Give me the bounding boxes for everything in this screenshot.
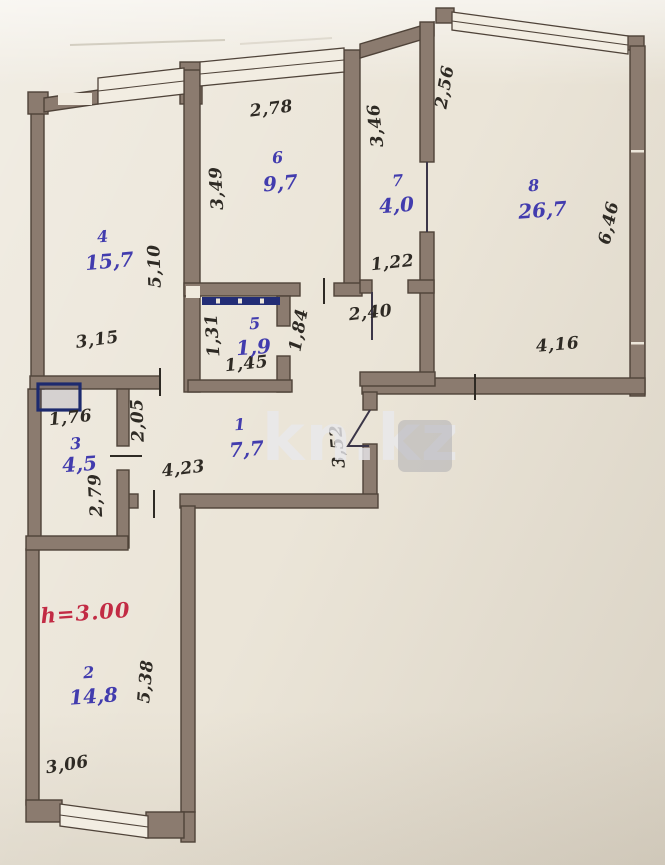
dim-5-38: 5,38 xyxy=(134,659,158,704)
dim-2-78: 2,78 xyxy=(248,96,295,121)
window-room-4 xyxy=(98,68,184,104)
room-6-area: 9,7 xyxy=(262,170,299,197)
dim-2-56: 2,56 xyxy=(431,64,458,111)
watermark-logo-box xyxy=(398,420,452,472)
room-4-area: 15,7 xyxy=(84,247,135,275)
room5-blue-strip xyxy=(202,297,280,305)
dim-3-06: 3,06 xyxy=(44,752,90,779)
dim-4-16: 4,16 xyxy=(535,333,580,357)
room-8-number: 8 xyxy=(526,176,539,196)
dim-6-46: 6,46 xyxy=(595,200,624,247)
ceiling-height-note: h=3.00 xyxy=(40,597,132,628)
room-2-number: 2 xyxy=(81,663,94,683)
room-3-area: 4,5 xyxy=(61,451,97,477)
dim-3-15: 3,15 xyxy=(74,327,120,353)
dim-2-05: 2,05 xyxy=(127,398,149,443)
dim-5-10: 5,10 xyxy=(144,244,166,288)
floor-plan-svg: 2,78 3,49 5,10 3,15 3,46 2,56 6,46 1,22 … xyxy=(0,0,665,865)
room-5-number: 5 xyxy=(248,314,260,334)
watermark: kn.kz xyxy=(262,402,459,476)
room-3-number: 3 xyxy=(69,434,81,454)
dim-1-31: 1,31 xyxy=(202,313,225,358)
dim-2-79: 2,79 xyxy=(85,473,107,518)
room-7-number: 7 xyxy=(391,171,403,191)
dim-2-40: 2,40 xyxy=(347,301,393,326)
room-6-number: 6 xyxy=(271,148,284,168)
wardrobe-symbol xyxy=(38,384,80,410)
room-1-number: 1 xyxy=(233,415,245,435)
room-7-area: 4,0 xyxy=(378,192,414,218)
pencil-marks xyxy=(70,38,332,45)
dim-3-49: 3,49 xyxy=(206,166,228,210)
dim-1-22: 1,22 xyxy=(370,251,415,275)
room-5-area: 1,9 xyxy=(235,334,271,360)
room-4-number: 4 xyxy=(96,227,109,247)
room-1-area: 7,7 xyxy=(228,436,264,462)
dim-4-23: 4,23 xyxy=(161,456,207,481)
dim-3-46: 3,46 xyxy=(364,103,388,148)
floor-plan-scan: 2,78 3,49 5,10 3,15 3,46 2,56 6,46 1,22 … xyxy=(0,0,665,865)
window-room-8 xyxy=(452,12,628,54)
room-8-area: 26,7 xyxy=(516,196,567,223)
window-room-6 xyxy=(200,48,344,86)
dim-1-76: 1,76 xyxy=(48,406,93,430)
window-room-2 xyxy=(60,804,148,838)
room-2-area: 14,8 xyxy=(68,682,118,709)
